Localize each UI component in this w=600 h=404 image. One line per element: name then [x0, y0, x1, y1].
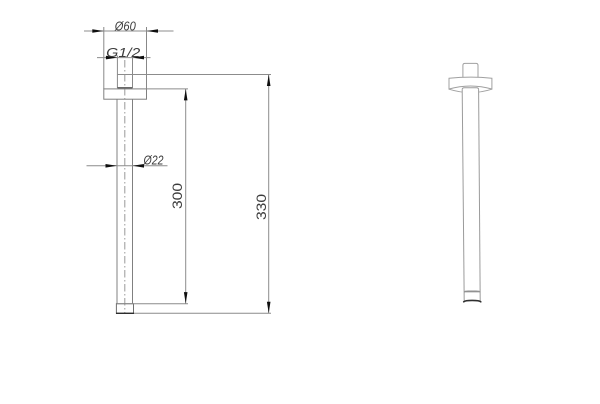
svg-text:G1/2: G1/2	[106, 46, 140, 60]
svg-text:330: 330	[253, 194, 269, 220]
svg-text:Ø22: Ø22	[143, 154, 164, 168]
svg-text:Ø60: Ø60	[114, 19, 136, 33]
svg-text:300: 300	[169, 183, 185, 209]
